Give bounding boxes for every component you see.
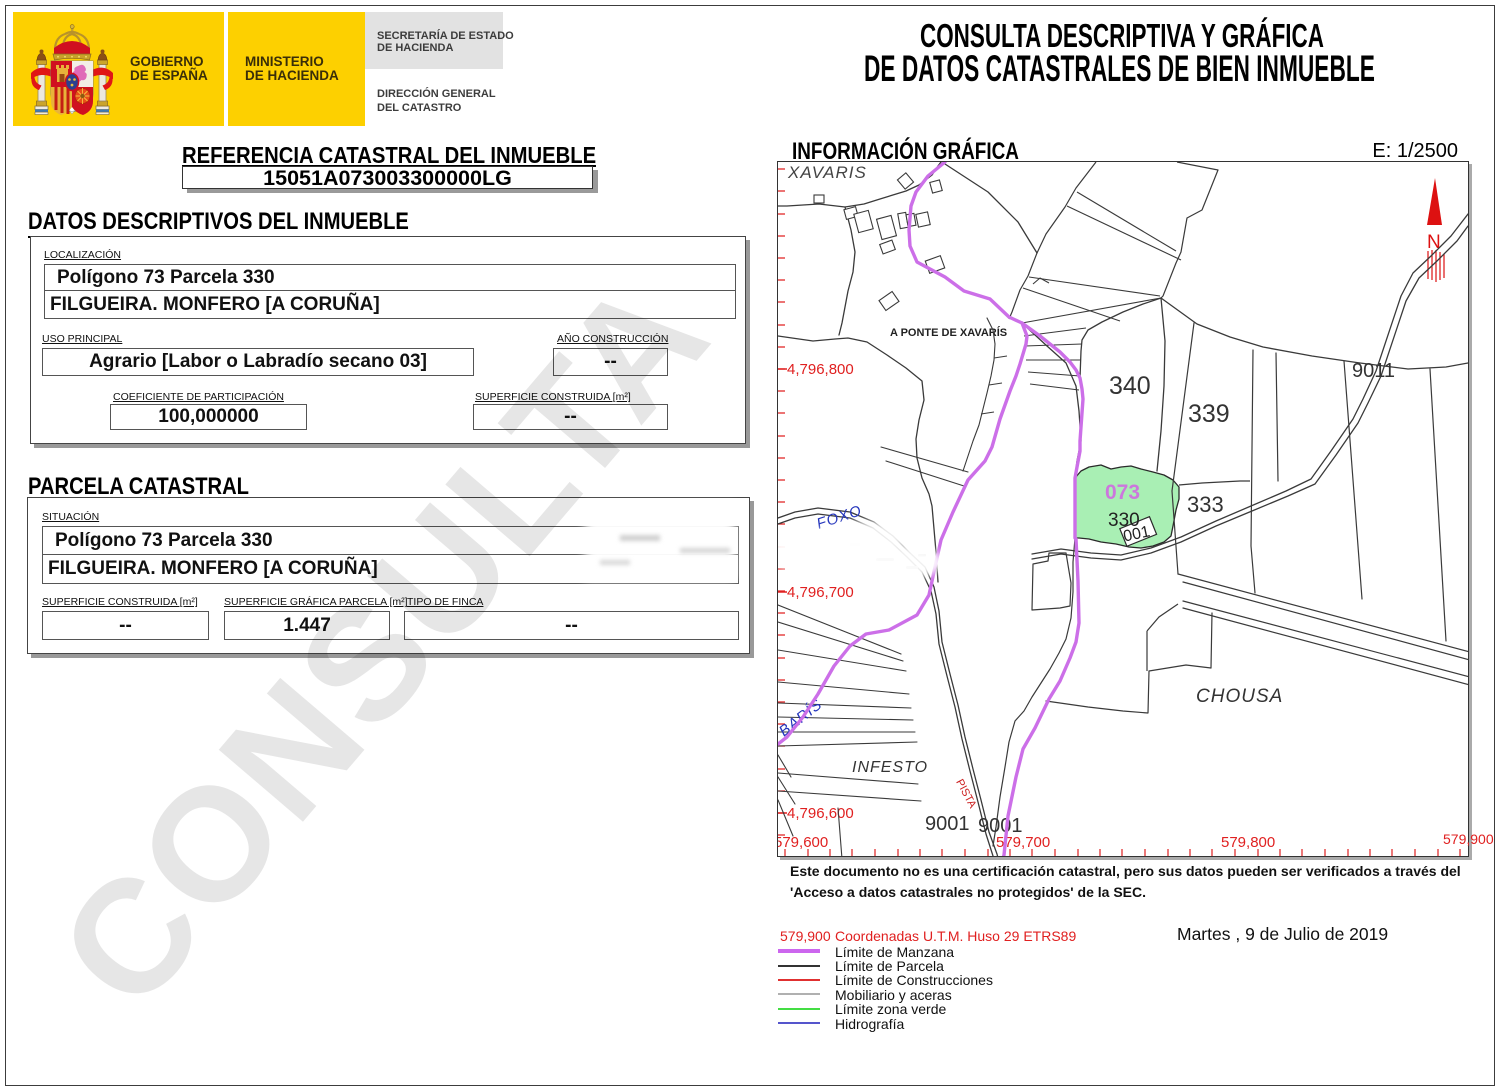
svg-text:340: 340 [1109,372,1151,400]
svg-text:9001: 9001 [978,815,1023,837]
svg-text:XAVARIS: XAVARIS [787,163,867,182]
svg-text:4,796,600: 4,796,600 [787,805,854,822]
svg-text:9011: 9011 [1352,360,1395,382]
svg-text:CHOUSA: CHOUSA [1196,686,1283,707]
svg-text:073: 073 [1105,481,1140,504]
svg-text:A PONTE DE XAVARÍS: A PONTE DE XAVARÍS [890,326,1007,339]
svg-text:333: 333 [1187,492,1224,517]
svg-text:4,796,800: 4,796,800 [787,361,854,378]
svg-text:579,600: 579,600 [778,834,828,851]
svg-text:4,796,700: 4,796,700 [787,584,854,601]
svg-text:PISTA: PISTA [953,777,978,811]
svg-text:N: N [1427,232,1441,253]
svg-text:579,800: 579,800 [1221,834,1275,851]
svg-text:9001: 9001 [925,813,970,835]
svg-text:339: 339 [1188,400,1230,428]
svg-text:INFESTO: INFESTO [852,759,928,776]
